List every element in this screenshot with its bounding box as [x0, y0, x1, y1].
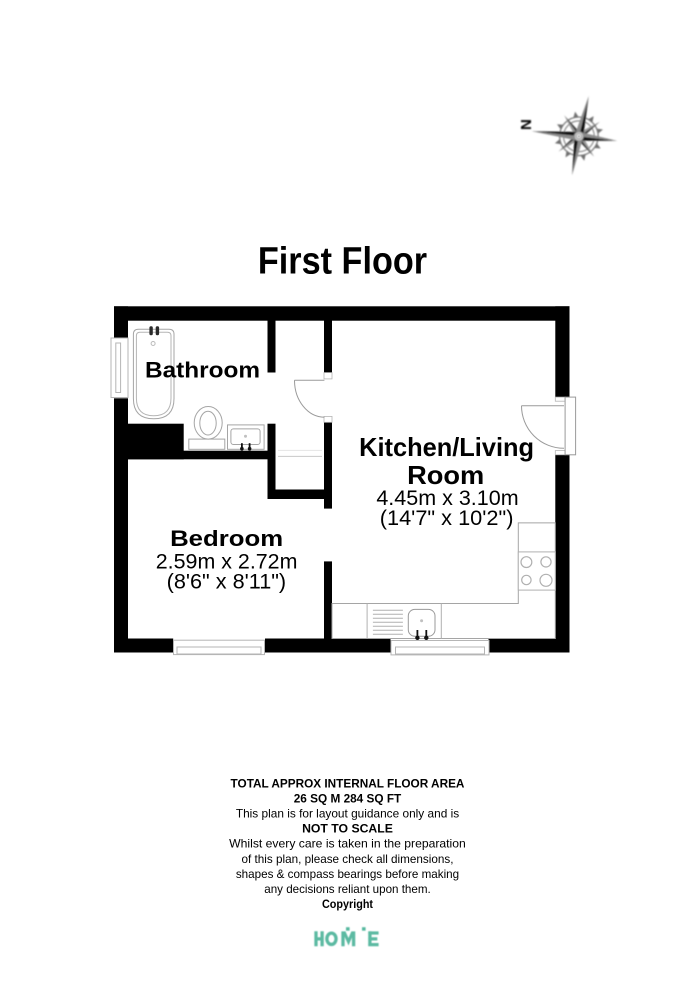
svg-text:(14'7" x 10'2"): (14'7" x 10'2")	[380, 506, 514, 530]
svg-text:Copyright: Copyright	[322, 897, 373, 911]
svg-text:Bathroom: Bathroom	[145, 357, 260, 382]
svg-text:NOT TO SCALE: NOT TO SCALE	[302, 822, 393, 836]
svg-text:(8'6" x 8'11"): (8'6" x 8'11")	[167, 570, 287, 594]
svg-text:This plan is for layout guidan: This plan is for layout guidance only an…	[236, 807, 459, 821]
svg-text:Whilst every care is taken in: Whilst every care is taken in the prepar…	[229, 837, 466, 851]
svg-text:First Floor: First Floor	[258, 241, 427, 283]
svg-text:Bedroom: Bedroom	[170, 526, 283, 551]
svg-text:of this plan, please check all: of this plan, please check all dimension…	[242, 852, 454, 866]
svg-text:shapes & compass bearings befo: shapes & compass bearings before making	[236, 867, 459, 881]
svg-text:Kitchen/Living: Kitchen/Living	[359, 432, 534, 462]
svg-text:any decisions reliant upon the: any decisions reliant upon them.	[264, 882, 431, 896]
svg-text:26 SQ M 284 SQ FT: 26 SQ M 284 SQ FT	[294, 791, 402, 805]
svg-text:N: N	[518, 119, 535, 130]
svg-text:TOTAL APPROX INTERNAL FLOOR AR: TOTAL APPROX INTERNAL FLOOR AREA	[231, 776, 465, 790]
